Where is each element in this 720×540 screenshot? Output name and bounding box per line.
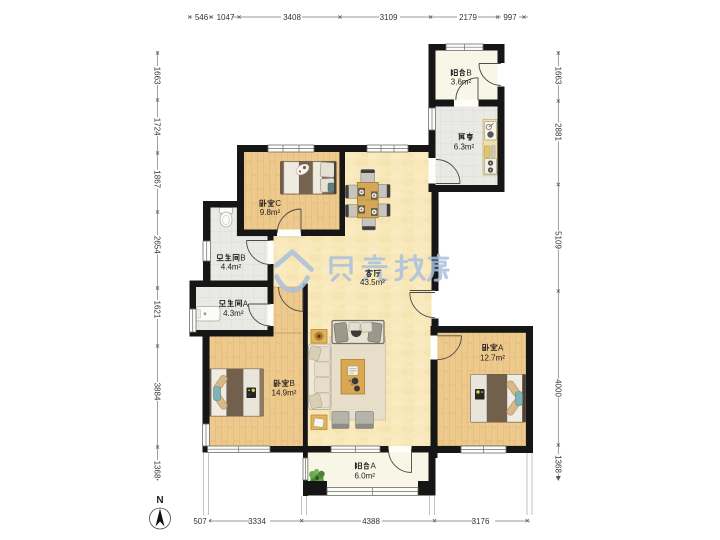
svg-text:43.5m²: 43.5m² bbox=[360, 278, 385, 287]
svg-text:C: C bbox=[275, 199, 281, 208]
svg-text:A: A bbox=[243, 299, 249, 308]
svg-text:4000: 4000 bbox=[554, 379, 563, 397]
svg-text:546: 546 bbox=[195, 13, 209, 22]
svg-text:5109: 5109 bbox=[554, 231, 563, 249]
svg-text:A: A bbox=[371, 462, 377, 471]
svg-text:2654: 2654 bbox=[153, 236, 162, 254]
svg-text:1368: 1368 bbox=[153, 461, 162, 479]
svg-text:B: B bbox=[240, 254, 245, 263]
svg-text:4.4m²: 4.4m² bbox=[221, 263, 242, 272]
svg-text:507: 507 bbox=[193, 517, 207, 526]
svg-text:9.8m²: 9.8m² bbox=[260, 208, 281, 217]
svg-text:1368: 1368 bbox=[554, 455, 563, 473]
svg-text:B: B bbox=[290, 379, 295, 388]
svg-text:3.6m²: 3.6m² bbox=[451, 78, 472, 87]
svg-text:1867: 1867 bbox=[153, 170, 162, 188]
svg-text:14.9m²: 14.9m² bbox=[272, 389, 297, 398]
svg-text:1621: 1621 bbox=[153, 301, 162, 319]
svg-text:3408: 3408 bbox=[283, 13, 301, 22]
svg-text:1047: 1047 bbox=[217, 13, 235, 22]
svg-text:4388: 4388 bbox=[362, 517, 380, 526]
svg-text:2179: 2179 bbox=[459, 13, 477, 22]
svg-text:2881: 2881 bbox=[554, 123, 563, 141]
svg-text:4.3m²: 4.3m² bbox=[223, 309, 244, 318]
svg-text:1724: 1724 bbox=[153, 118, 162, 136]
svg-text:6.0m²: 6.0m² bbox=[354, 472, 375, 481]
svg-text:1663: 1663 bbox=[554, 67, 563, 85]
svg-text:997: 997 bbox=[503, 13, 517, 22]
svg-text:3176: 3176 bbox=[472, 517, 490, 526]
svg-text:A: A bbox=[498, 343, 504, 352]
svg-text:N: N bbox=[156, 495, 163, 506]
svg-text:3334: 3334 bbox=[248, 517, 266, 526]
svg-text:3884: 3884 bbox=[153, 383, 162, 401]
svg-text:1663: 1663 bbox=[153, 67, 162, 85]
svg-text:12.7m²: 12.7m² bbox=[480, 353, 505, 362]
svg-text:6.3m²: 6.3m² bbox=[454, 142, 475, 151]
svg-text:B: B bbox=[466, 69, 471, 78]
svg-text:3109: 3109 bbox=[380, 13, 398, 22]
